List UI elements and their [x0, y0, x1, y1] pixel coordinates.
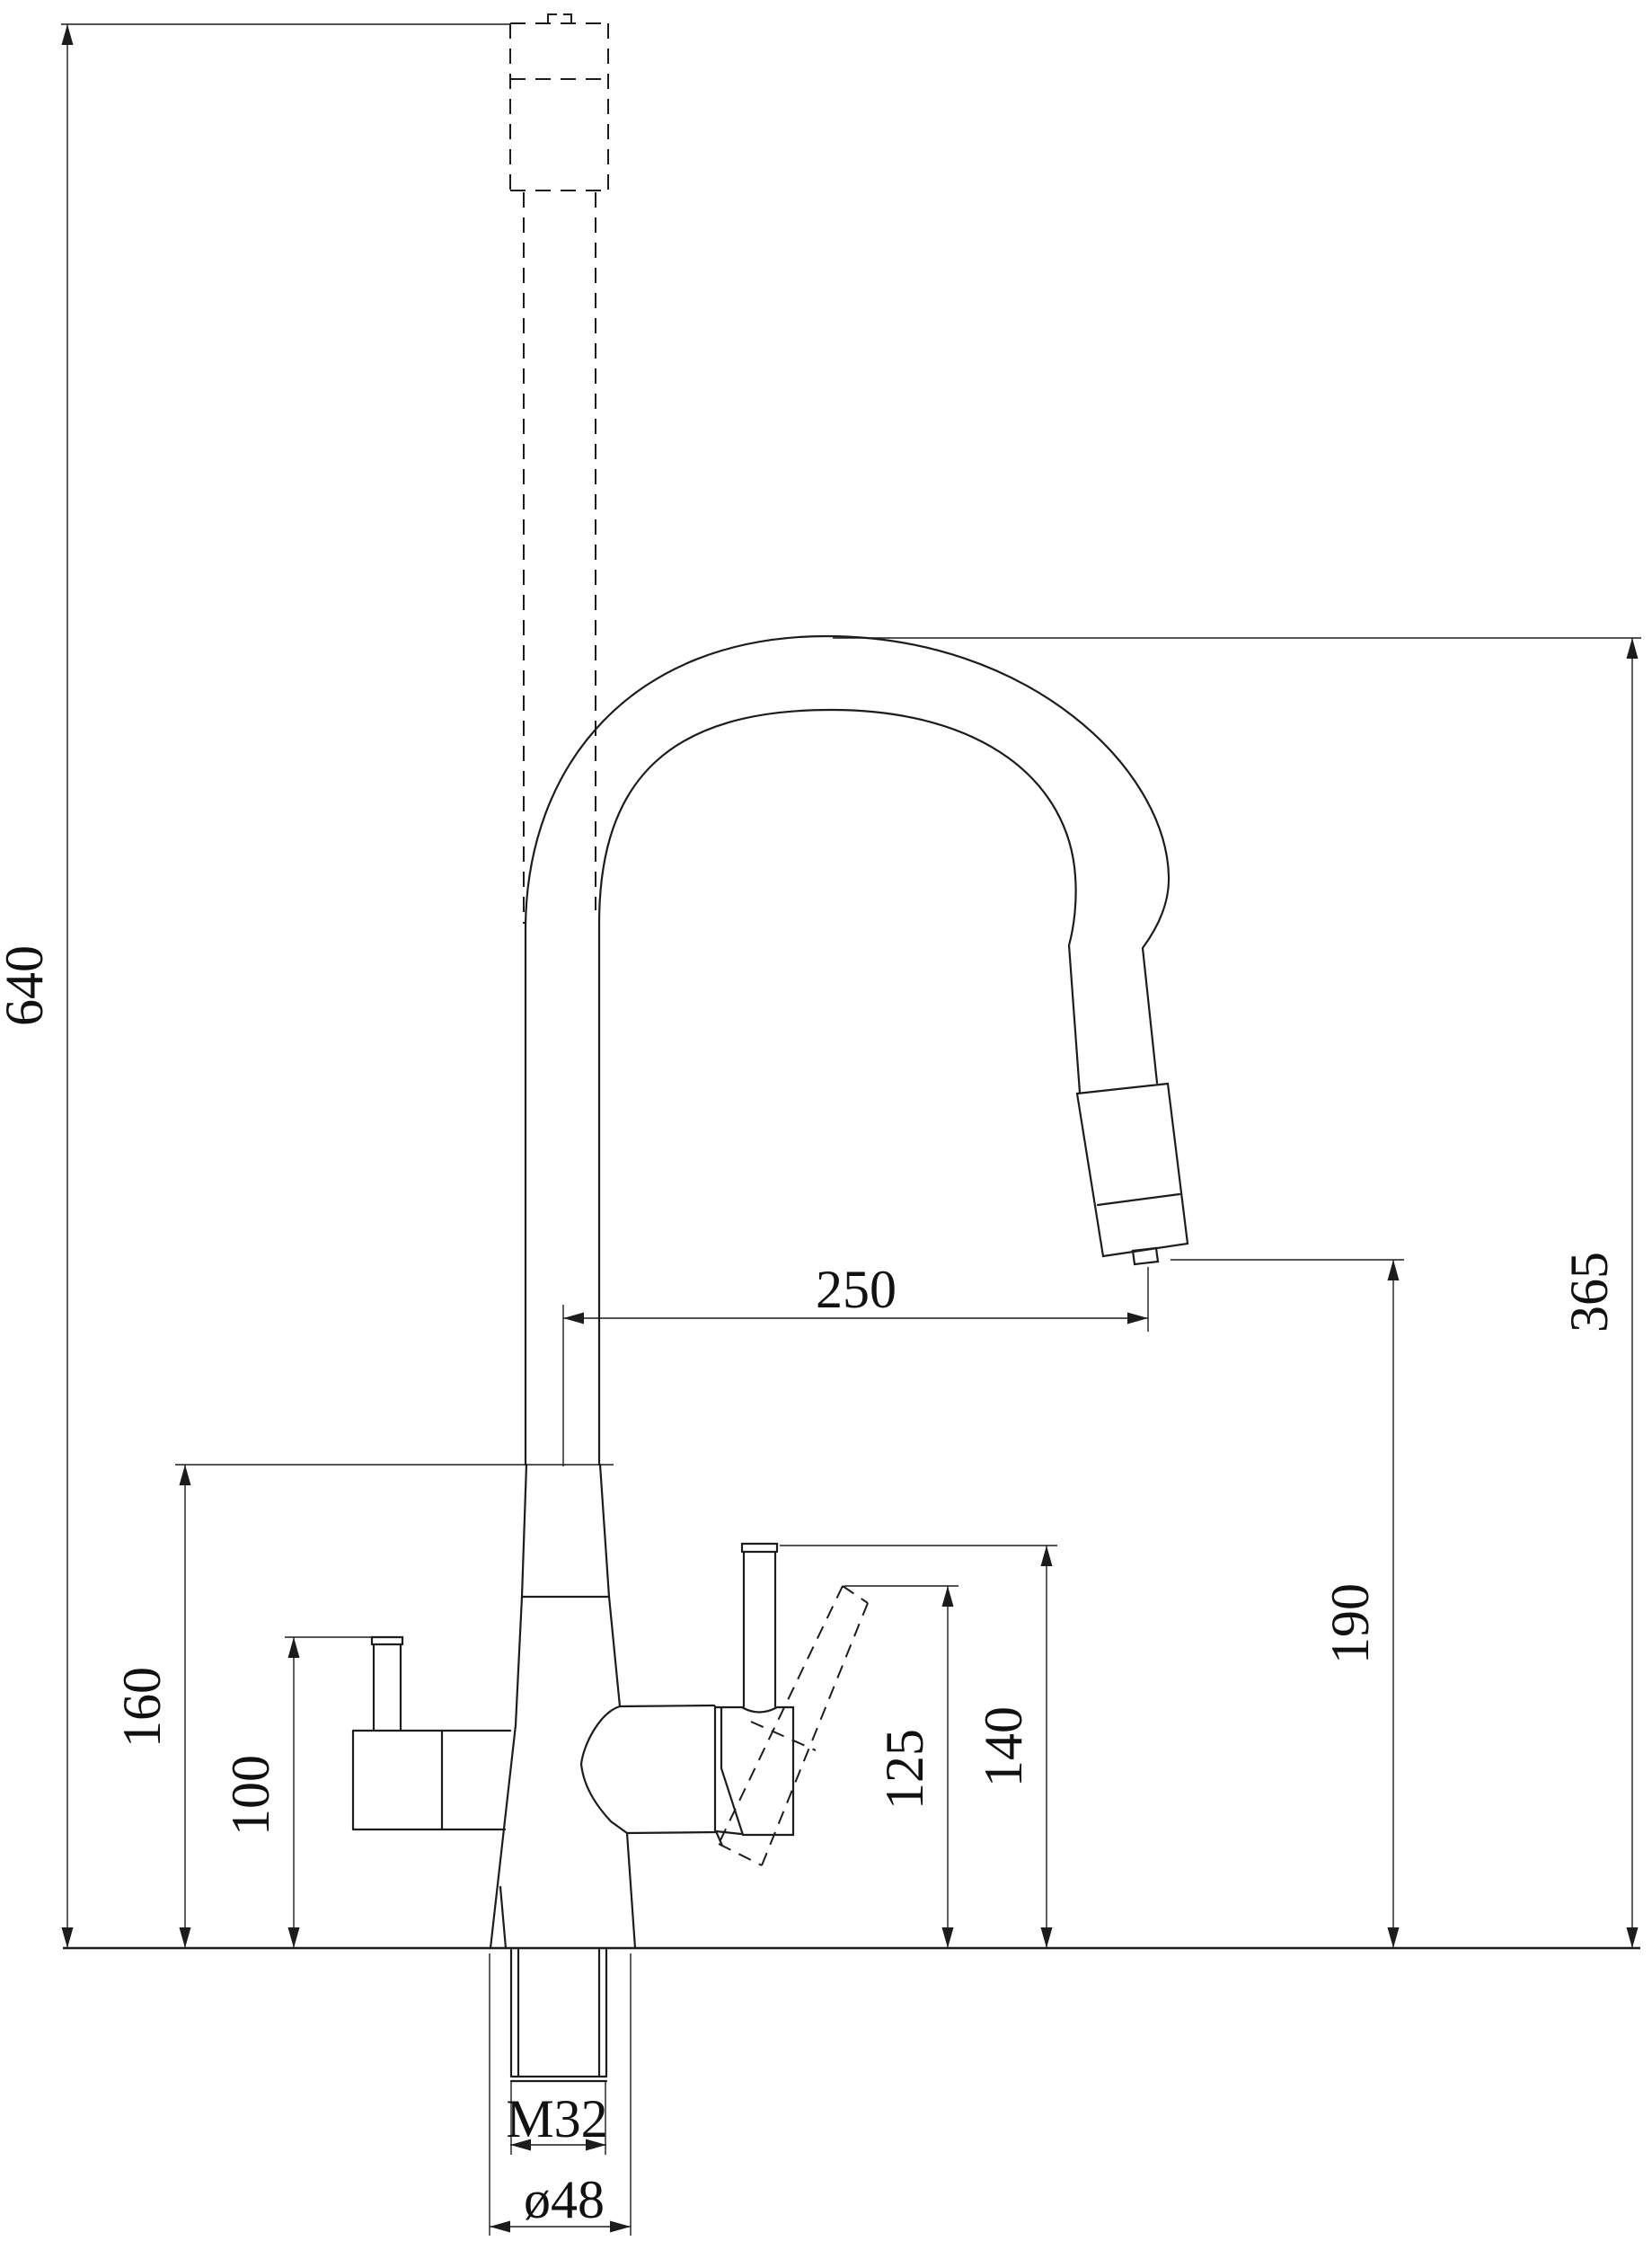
spray-head-aerator-line	[1098, 1194, 1179, 1205]
left-side-tube	[372, 1637, 402, 1731]
collar	[522, 1465, 609, 1597]
dim-190-label: 190	[1321, 1583, 1380, 1664]
dimension-lines	[61, 24, 1641, 2236]
body-left-base-line	[500, 1887, 506, 1948]
faucet-technical-drawing: 640 250 365 190 160 100 125 140 M32 ø48	[0, 0, 1652, 2250]
dim-100-label: 100	[221, 1755, 280, 1836]
spray-head	[1077, 1084, 1188, 1256]
faucet-body-outline	[353, 636, 1188, 2081]
dim-o48-label: ø48	[524, 2170, 605, 2229]
gooseneck-inner	[599, 710, 1080, 1093]
parked-head-tube	[524, 192, 596, 924]
body-right-edge	[609, 1597, 620, 1706]
cartridge-block	[715, 1706, 793, 1846]
arrows-vertical	[62, 24, 1639, 1948]
parked-head-outline	[510, 23, 608, 190]
body-right-lower-edge	[627, 1833, 635, 1948]
dim-365-label: 365	[1559, 1252, 1619, 1333]
dim-m32-label: M32	[506, 2089, 607, 2148]
threaded-shank	[511, 1950, 606, 2081]
dim-160-label: 160	[112, 1667, 172, 1748]
extension-lines	[61, 24, 1641, 2236]
parked-head-clip-notch	[548, 14, 571, 23]
gooseneck-outer	[526, 636, 1169, 1083]
dim-250-label: 250	[816, 1260, 897, 1319]
cartridge-bullet	[581, 1705, 716, 1833]
dim-140-label: 140	[974, 1706, 1033, 1787]
dim-125-label: 125	[875, 1729, 934, 1810]
faucet-technical-drawing-page: 640 250 365 190 160 100 125 140 M32 ø48	[0, 0, 1652, 2250]
dimension-arrowheads	[62, 24, 1639, 2233]
dimension-labels: 640 250 365 190 160 100 125 140 M32 ø48	[0, 945, 1619, 2229]
left-handle-block	[353, 1731, 510, 1829]
lever-up	[742, 1544, 777, 1706]
lever-rotated-cartridge-edge	[751, 1722, 816, 1750]
riser-column	[526, 924, 599, 1465]
dim-640-label: 640	[0, 945, 54, 1026]
body-left-edge	[490, 1597, 522, 1948]
pullout-head-parked-dashed	[510, 23, 608, 924]
